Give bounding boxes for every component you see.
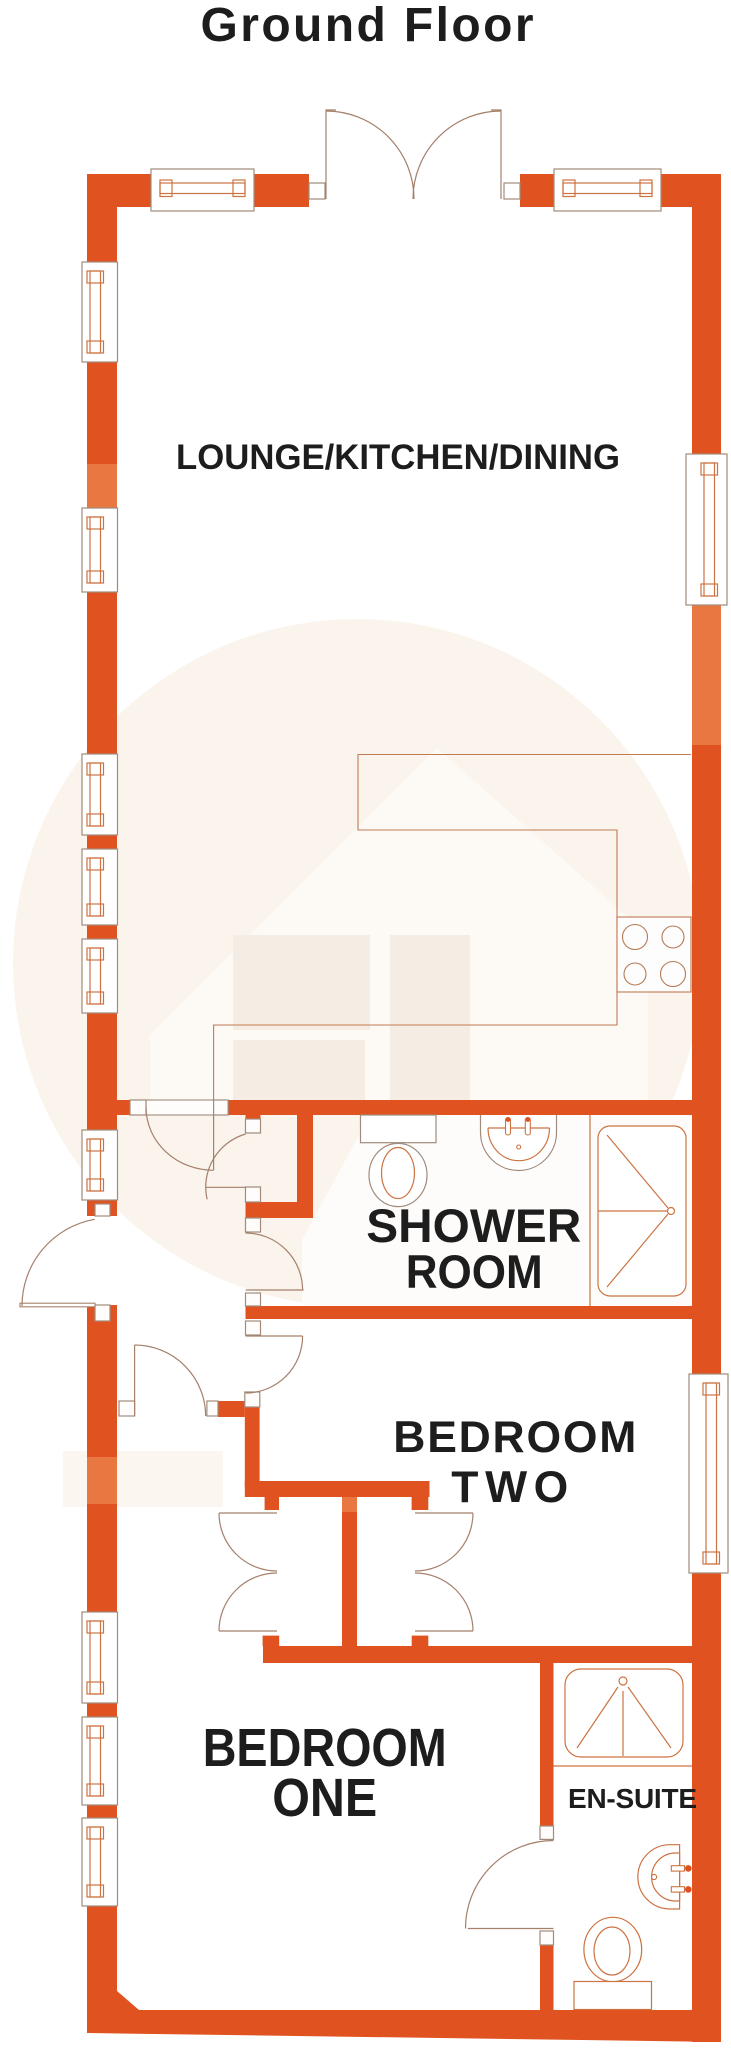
svg-text:LOUNGE/KITCHEN/DINING: LOUNGE/KITCHEN/DINING bbox=[176, 438, 620, 477]
svg-text:ONE: ONE bbox=[272, 1769, 377, 1828]
svg-text:ROOM: ROOM bbox=[406, 1246, 543, 1299]
svg-text:TWO: TWO bbox=[451, 1463, 568, 1512]
svg-text:BEDROOM: BEDROOM bbox=[393, 1413, 636, 1462]
svg-text:EN-SUITE: EN-SUITE bbox=[568, 1783, 697, 1814]
svg-text:Ground Floor: Ground Floor bbox=[201, 0, 534, 52]
